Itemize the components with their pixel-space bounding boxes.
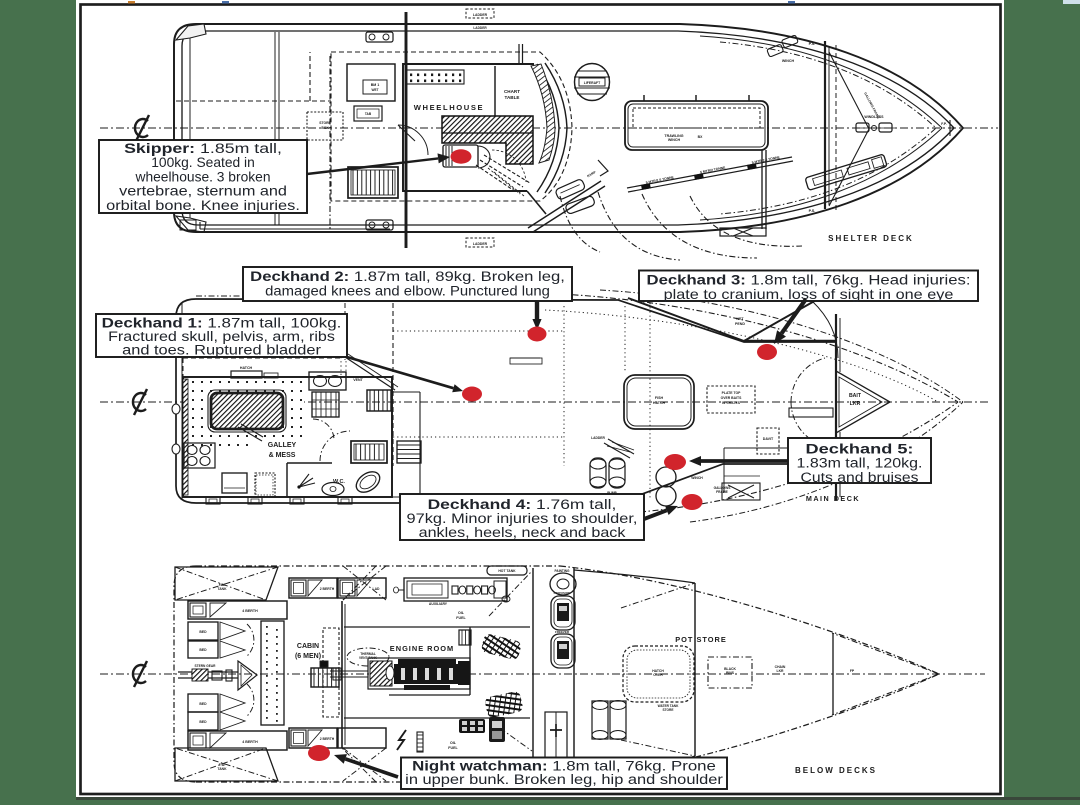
svg-text:LAD: LAD <box>373 587 381 591</box>
svg-text:LADDER: LADDER <box>473 26 487 30</box>
svg-text:HATCH: HATCH <box>240 366 253 370</box>
svg-text:FRAME: FRAME <box>716 490 729 494</box>
svg-text:CHART: CHART <box>504 89 520 94</box>
svg-text:2 BERTH: 2 BERTH <box>320 587 335 591</box>
svg-text:plate to cranium, loss of sigh: plate to cranium, loss of sight in one e… <box>664 287 954 303</box>
svg-text:FUEL: FUEL <box>456 616 466 620</box>
svg-text:POT STORE: POT STORE <box>675 635 727 644</box>
svg-text:BX: BX <box>698 135 703 139</box>
svg-text:ankles, heels, neck and back: ankles, heels, neck and back <box>419 525 626 541</box>
svg-text:BAIT: BAIT <box>849 393 862 399</box>
svg-text:4 BERTH: 4 BERTH <box>242 740 258 744</box>
svg-text:TAB: TAB <box>365 112 372 116</box>
svg-text:PAINTING: PAINTING <box>555 569 571 573</box>
svg-text:LADDER: LADDER <box>591 436 605 440</box>
svg-text:BINS: BINS <box>726 671 735 675</box>
svg-text:FUEL: FUEL <box>448 746 458 750</box>
svg-text:BELOW DECKS: BELOW DECKS <box>795 766 877 775</box>
svg-text:and toes. Ruptured bladder: and toes. Ruptured bladder <box>122 343 321 358</box>
svg-text:CABIN: CABIN <box>297 643 319 650</box>
svg-text:FISH: FISH <box>655 396 664 400</box>
svg-text:& MESS: & MESS <box>269 452 296 459</box>
svg-text:HATCH: HATCH <box>653 401 666 405</box>
svg-text:OVER: OVER <box>653 673 663 677</box>
svg-text:BED: BED <box>199 702 207 706</box>
svg-text:TANK: TANK <box>217 587 227 591</box>
svg-text:OIL: OIL <box>458 611 465 615</box>
svg-text:STORE: STORE <box>319 121 331 125</box>
svg-text:WINCH: WINCH <box>691 476 703 480</box>
svg-text:STERN GEAR: STERN GEAR <box>195 664 217 668</box>
svg-text:BED: BED <box>199 630 207 634</box>
svg-text:damaged knees and elbow. Punct: damaged knees and elbow. Punctured lung <box>265 284 550 300</box>
svg-text:PLATE TOP: PLATE TOP <box>722 391 741 395</box>
svg-text:SHELTER DECK: SHELTER DECK <box>828 234 914 243</box>
svg-text:P.S.: P.S. <box>809 42 816 46</box>
svg-text:OVER BAITS: OVER BAITS <box>721 396 742 400</box>
svg-text:FP: FP <box>850 669 855 673</box>
svg-text:in upper bunk. Broken leg, hip: in upper bunk. Broken leg, hip and shoul… <box>405 772 723 788</box>
svg-text:1.83m tall, 120kg.: 1.83m tall, 120kg. <box>797 456 923 472</box>
svg-text:LADDER: LADDER <box>473 242 488 246</box>
svg-text:WHEELHOUSE: WHEELHOUSE <box>414 103 484 112</box>
svg-text:(6 MEN): (6 MEN) <box>295 653 321 660</box>
svg-text:LADDER: LADDER <box>473 13 488 17</box>
svg-text:NET: NET <box>736 317 744 321</box>
svg-text:PEND: PEND <box>735 322 745 326</box>
svg-text:Cuts and bruises: Cuts and bruises <box>801 471 919 486</box>
svg-text:wheelhouse. 3 broken: wheelhouse. 3 broken <box>135 169 271 184</box>
svg-text:STORE: STORE <box>663 708 674 712</box>
svg-text:100kg. Seated in: 100kg. Seated in <box>151 155 255 170</box>
svg-text:P.S.: P.S. <box>809 209 816 213</box>
svg-text:MAIN DECK: MAIN DECK <box>806 494 860 503</box>
svg-text:LIFERAFT: LIFERAFT <box>584 81 601 85</box>
svg-text:Deckhand 2: 1.87m tall, 89kg.: Deckhand 2: 1.87m tall, 89kg. Broken leg… <box>250 269 565 284</box>
svg-text:PROVISION: PROVISION <box>554 591 571 595</box>
svg-text:WET: WET <box>371 88 378 92</box>
svg-text:TABLE: TABLE <box>505 95 520 100</box>
svg-text:TANK: TANK <box>217 767 227 771</box>
svg-text:ENGINE ROOM: ENGINE ROOM <box>390 644 454 653</box>
svg-text:BM 1: BM 1 <box>371 83 380 87</box>
svg-text:GALLEY: GALLEY <box>268 442 297 449</box>
svg-text:4 BERTH: 4 BERTH <box>242 609 258 613</box>
svg-text:WINCH: WINCH <box>782 59 795 63</box>
svg-text:AUXILIARY: AUXILIARY <box>429 602 448 606</box>
svg-text:IN CRATES: IN CRATES <box>722 401 741 405</box>
svg-text:LKR: LKR <box>777 669 785 673</box>
svg-text:FREEZER: FREEZER <box>555 630 570 634</box>
svg-text:HOT TANK: HOT TANK <box>498 569 516 573</box>
svg-text:2 BERTH: 2 BERTH <box>320 737 335 741</box>
svg-text:BED: BED <box>199 720 207 724</box>
svg-text:BED: BED <box>199 648 207 652</box>
svg-text:OIL: OIL <box>450 741 457 745</box>
svg-text:BOX: BOX <box>321 126 329 130</box>
svg-text:WINCH: WINCH <box>668 138 681 142</box>
svg-text:VENT: VENT <box>353 378 363 382</box>
svg-text:vertebrae, sternum and: vertebrae, sternum and <box>119 184 287 200</box>
svg-text:Deckhand 3: 1.8m tall, 76kg. H: Deckhand 3: 1.8m tall, 76kg. Head injuri… <box>647 273 971 288</box>
svg-text:F.P.: F.P. <box>941 122 947 126</box>
svg-text:LKR: LKR <box>850 401 861 407</box>
svg-text:DAVIT: DAVIT <box>763 437 774 441</box>
svg-text:orbital bone. Knee injuries.: orbital bone. Knee injuries. <box>106 198 300 213</box>
